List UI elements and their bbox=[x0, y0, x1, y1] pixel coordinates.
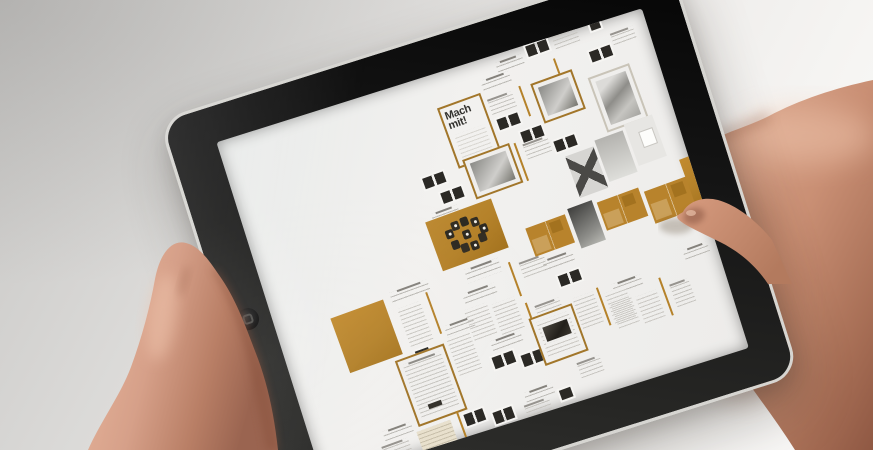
thumb-caption[interactable] bbox=[541, 250, 575, 272]
thumb-caption[interactable] bbox=[495, 53, 525, 74]
thumb-photo-pair[interactable] bbox=[422, 171, 446, 189]
thumb-photo-pair[interactable] bbox=[492, 350, 517, 369]
thumb-caption[interactable] bbox=[480, 71, 512, 93]
thumb-photo-pair[interactable] bbox=[463, 408, 486, 426]
thumb-text-block[interactable] bbox=[669, 278, 696, 307]
photo-scene: Mach mit! bbox=[0, 0, 873, 450]
thumb-vline[interactable] bbox=[518, 86, 531, 117]
thumb-photo-pair[interactable] bbox=[558, 269, 582, 287]
thumb-photo-pair[interactable] bbox=[440, 186, 464, 204]
thumb-text-block[interactable] bbox=[576, 355, 604, 378]
home-button[interactable] bbox=[234, 305, 262, 333]
thumb-spread[interactable] bbox=[597, 188, 649, 231]
thumb-photo-pair[interactable] bbox=[589, 45, 613, 63]
thumb-photo-chip[interactable] bbox=[559, 387, 574, 401]
thumb-caption[interactable] bbox=[462, 283, 498, 306]
thumb-photo-pair[interactable] bbox=[496, 112, 520, 130]
thumb-caption[interactable] bbox=[382, 422, 414, 442]
poster-title: Mach mit! bbox=[440, 95, 488, 133]
thumb-photo-chip[interactable] bbox=[587, 15, 601, 31]
thumb-orange-rect[interactable] bbox=[330, 300, 402, 374]
thumb-text-block[interactable] bbox=[487, 91, 517, 115]
thumb-text-block[interactable] bbox=[610, 26, 637, 47]
thumb-frame-photo[interactable] bbox=[530, 69, 586, 124]
thumb-caption[interactable] bbox=[682, 241, 711, 261]
thumb-text-col[interactable] bbox=[397, 301, 434, 349]
thumb-text-block[interactable] bbox=[550, 25, 580, 49]
thumb-photo-pair[interactable] bbox=[492, 406, 515, 424]
thumb-photo-pair[interactable] bbox=[525, 39, 549, 57]
thumb-photo-pair[interactable] bbox=[553, 134, 577, 152]
thumb-text-col[interactable] bbox=[635, 290, 666, 326]
